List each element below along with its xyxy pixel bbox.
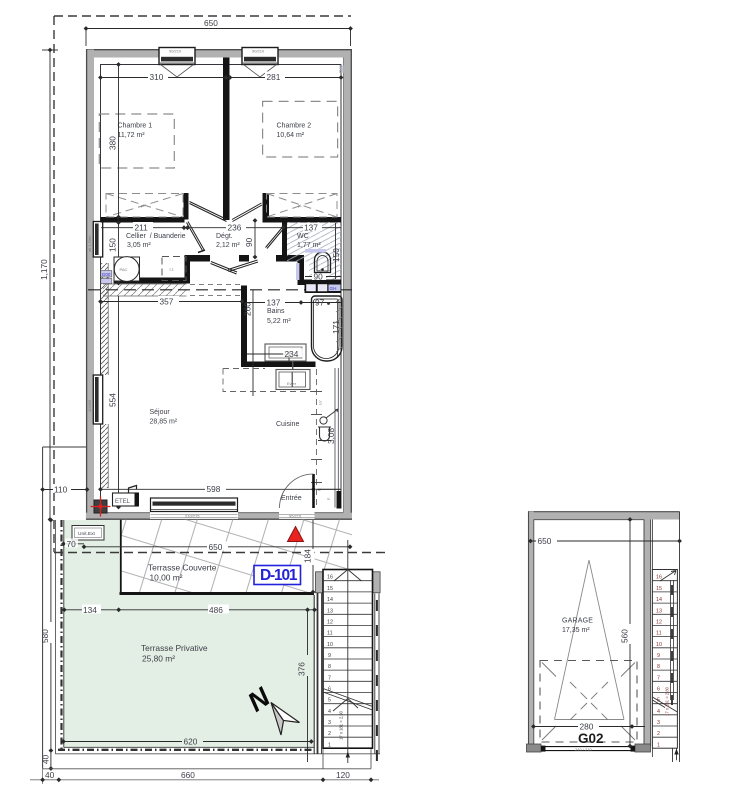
svg-text:620: 620 [184,737,198,747]
svg-text:650: 650 [204,18,218,28]
svg-text:357: 357 [160,297,174,307]
svg-text:260: 260 [243,302,253,316]
svg-text:pl.: pl. [298,203,302,208]
svg-text:281: 281 [267,72,281,82]
svg-text:11,72 m²: 11,72 m² [118,132,146,139]
svg-text:486: 486 [209,605,223,615]
svg-text:Unit.Ext: Unit.Ext [78,531,95,537]
svg-text:210/215: 210/215 [185,513,200,518]
svg-text:100/95: 100/95 [87,399,92,412]
svg-text:236: 236 [228,223,242,233]
svg-text:9: 9 [657,653,660,659]
svg-text:10,00 m²: 10,00 m² [150,573,183,583]
svg-text:3,08: 3,08 [326,427,336,444]
svg-text:4: 4 [657,709,660,715]
svg-text:pl.: pl. [141,203,145,208]
svg-text:28,85 m²: 28,85 m² [150,419,178,426]
svg-text:90/210: 90/210 [169,48,182,53]
svg-text:110: 110 [54,485,68,495]
svg-text:150: 150 [108,238,118,252]
svg-text:10: 10 [656,642,662,648]
svg-text:Chambre 2: Chambre 2 [277,123,312,130]
svg-text:90/210: 90/210 [339,63,343,73]
svg-text:Terrasse Privative: Terrasse Privative [141,643,208,653]
svg-text:17 x 181 = 2,80: 17 x 181 = 2,80 [665,686,670,716]
svg-text:598: 598 [207,484,221,494]
svg-text:137: 137 [267,298,281,308]
svg-text:120: 120 [336,770,350,780]
svg-text:5: 5 [328,698,331,704]
svg-text:Evier: Evier [287,381,297,386]
svg-text:15: 15 [327,586,333,592]
svg-text:3,05 m²: 3,05 m² [127,242,151,249]
svg-text:Cuisine: Cuisine [276,421,299,428]
svg-text:GARAGE: GARAGE [562,618,593,625]
svg-text:10: 10 [327,642,333,648]
svg-text:7: 7 [657,675,660,681]
svg-text:Cellier / Buanderie: Cellier / Buanderie [126,233,186,240]
svg-text:Terrasse Couverte: Terrasse Couverte [148,563,217,573]
svg-text:10,64 m²: 10,64 m² [277,132,305,139]
svg-text:5,22 m²: 5,22 m² [267,318,291,325]
svg-text:6: 6 [657,687,660,693]
svg-text:1,77 m²: 1,77 m² [297,242,321,249]
svg-text:ETEL: ETEL [115,499,131,505]
svg-text:40: 40 [45,770,55,780]
svg-text:12: 12 [327,619,333,625]
svg-text:LL: LL [170,267,175,272]
svg-text:40: 40 [41,754,51,764]
svg-text:1: 1 [657,742,660,748]
svg-text:PAC: PAC [120,267,128,272]
svg-text:560: 560 [619,629,629,643]
svg-text:8: 8 [328,664,331,670]
svg-text:Entrée: Entrée [281,495,302,502]
svg-text:1: 1 [328,742,331,748]
svg-text:3: 3 [657,720,660,726]
svg-text:9: 9 [328,653,331,659]
svg-text:G00: G00 [102,272,111,277]
svg-text:650: 650 [209,542,223,552]
svg-text:Dégt.: Dégt. [216,233,233,240]
svg-text:4: 4 [328,709,331,715]
svg-text:310: 310 [150,72,164,82]
svg-text:15: 15 [656,586,662,592]
svg-text:11: 11 [656,631,662,637]
svg-text:211: 211 [135,223,149,233]
svg-text:2,12 m²: 2,12 m² [216,242,240,249]
svg-text:2: 2 [328,731,331,737]
svg-text:14: 14 [327,597,333,603]
svg-text:554: 554 [108,393,118,407]
svg-text:137: 137 [304,223,318,233]
svg-text:Séjour: Séjour [150,409,171,416]
svg-text:1,170: 1,170 [39,259,49,280]
svg-text:LV: LV [318,400,323,405]
svg-text:90: 90 [244,237,254,247]
svg-text:7: 7 [328,675,331,681]
svg-text:16: 16 [327,575,333,581]
svg-text:95/215: 95/215 [289,513,302,518]
svg-text:580: 580 [40,629,50,643]
svg-text:234: 234 [285,349,299,359]
svg-text:11: 11 [327,631,333,637]
svg-text:12: 12 [656,619,662,625]
svg-text:2: 2 [657,731,660,737]
svg-text:D-101: D-101 [260,567,298,584]
svg-text:90/210: 90/210 [252,48,265,53]
svg-text:17,35 m²: 17,35 m² [562,627,590,634]
svg-text:134: 134 [83,605,97,615]
svg-text:376: 376 [297,662,307,676]
svg-text:3: 3 [328,720,331,726]
svg-text:380: 380 [108,136,118,150]
svg-text:650: 650 [538,536,552,546]
svg-text:660: 660 [181,770,195,780]
svg-text:70: 70 [67,539,77,549]
svg-text:Chambre 1: Chambre 1 [118,123,153,130]
svg-text:184: 184 [303,549,313,563]
svg-text:alt 1,50m: alt 1,50m [87,235,92,252]
svg-text:F.: F. [326,497,331,500]
svg-text:WC: WC [297,233,309,240]
svg-text:8: 8 [657,664,660,670]
svg-text:280: 280 [580,722,594,732]
svg-text:150: 150 [331,248,341,262]
svg-text:17 x 181 = 2,90: 17 x 181 = 2,90 [339,710,344,740]
svg-text:25,80 m²: 25,80 m² [142,654,175,664]
svg-text:13: 13 [656,608,662,614]
svg-text:13: 13 [327,608,333,614]
svg-text:Bains: Bains [267,308,285,315]
svg-text:G02: G02 [578,731,604,746]
svg-text:GH: GH [330,286,337,291]
svg-text:14: 14 [656,597,662,603]
svg-text:240 / 210: 240 / 210 [575,747,592,752]
